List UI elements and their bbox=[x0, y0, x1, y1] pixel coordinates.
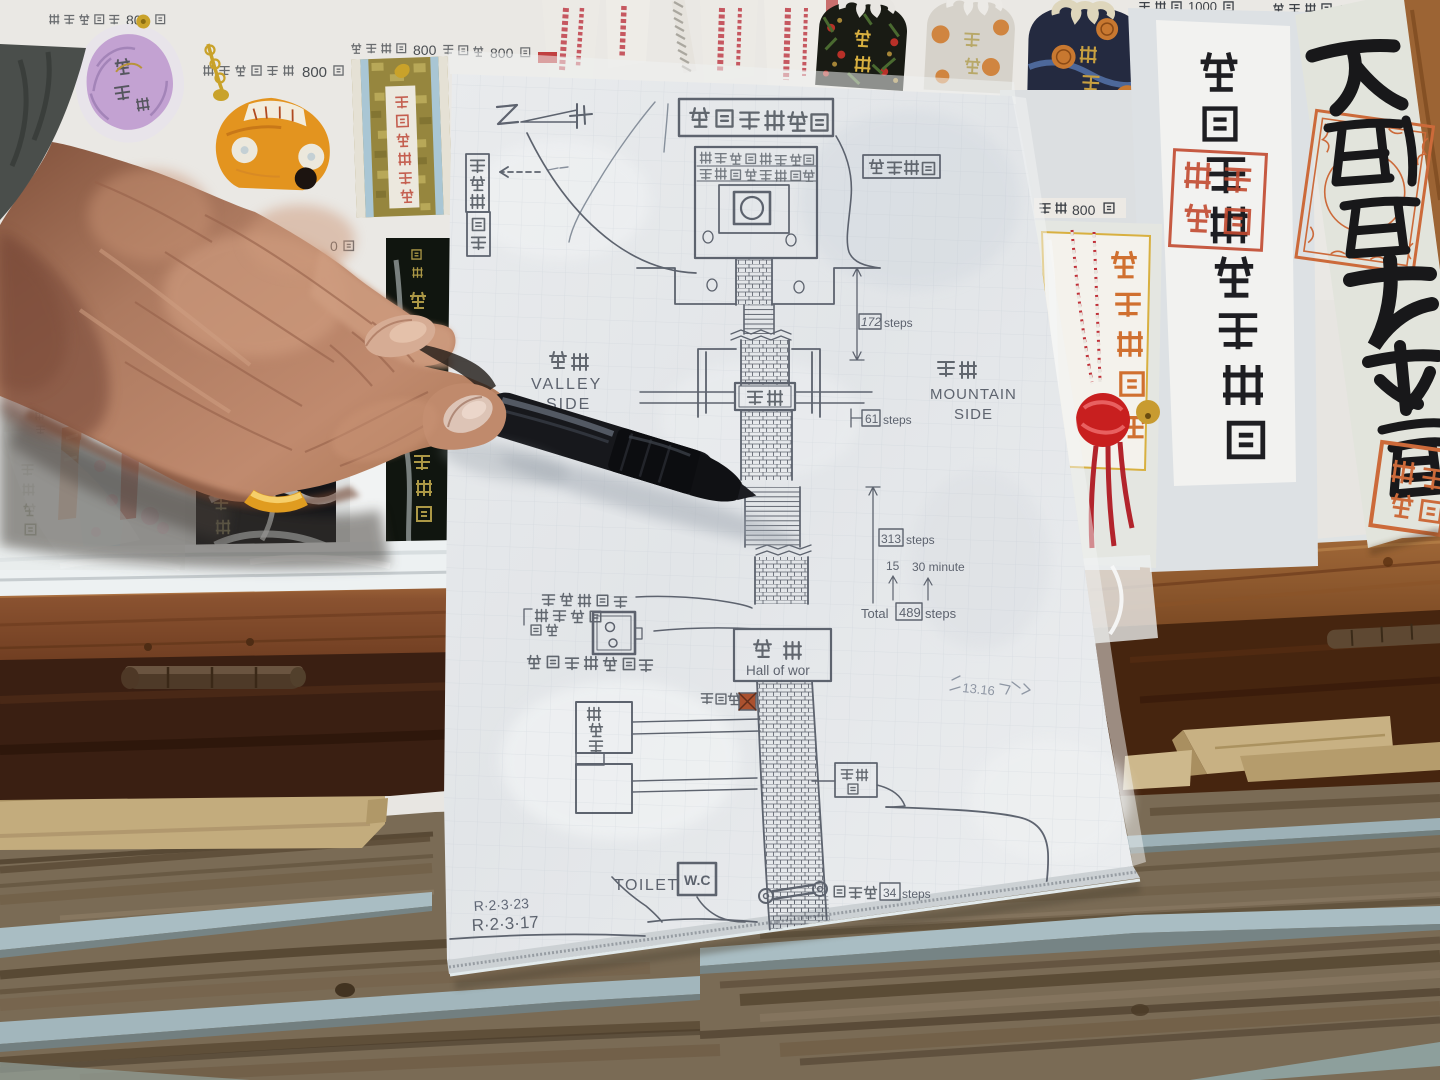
svg-text:489: 489 bbox=[899, 605, 921, 620]
svg-text:SIDE: SIDE bbox=[954, 406, 993, 423]
svg-text:34: 34 bbox=[883, 886, 897, 900]
svg-text:steps: steps bbox=[906, 533, 935, 547]
svg-text:W.C: W.C bbox=[684, 872, 710, 888]
svg-text:Total: Total bbox=[861, 606, 889, 621]
svg-text:Hall of wor: Hall of wor bbox=[746, 663, 810, 678]
svg-text:steps: steps bbox=[902, 887, 931, 901]
svg-text:800: 800 bbox=[1072, 202, 1096, 218]
svg-text:R·2·3·23: R·2·3·23 bbox=[473, 895, 529, 914]
svg-text:313: 313 bbox=[881, 532, 901, 546]
svg-text:800: 800 bbox=[413, 42, 437, 58]
svg-text:61: 61 bbox=[865, 412, 879, 426]
svg-text:steps: steps bbox=[883, 413, 912, 427]
svg-text:30 minute: 30 minute bbox=[912, 560, 965, 574]
svg-text:steps: steps bbox=[884, 316, 913, 330]
svg-text:172: 172 bbox=[861, 315, 881, 329]
svg-text:15: 15 bbox=[886, 559, 900, 573]
svg-text:MOUNTAIN: MOUNTAIN bbox=[930, 386, 1017, 403]
svg-text:TOILET: TOILET bbox=[614, 877, 679, 894]
svg-text:steps: steps bbox=[925, 606, 957, 621]
svg-text:VALLEY: VALLEY bbox=[531, 376, 602, 393]
svg-text:800: 800 bbox=[302, 64, 327, 81]
svg-text:R·2·3·17: R·2·3·17 bbox=[471, 913, 539, 935]
